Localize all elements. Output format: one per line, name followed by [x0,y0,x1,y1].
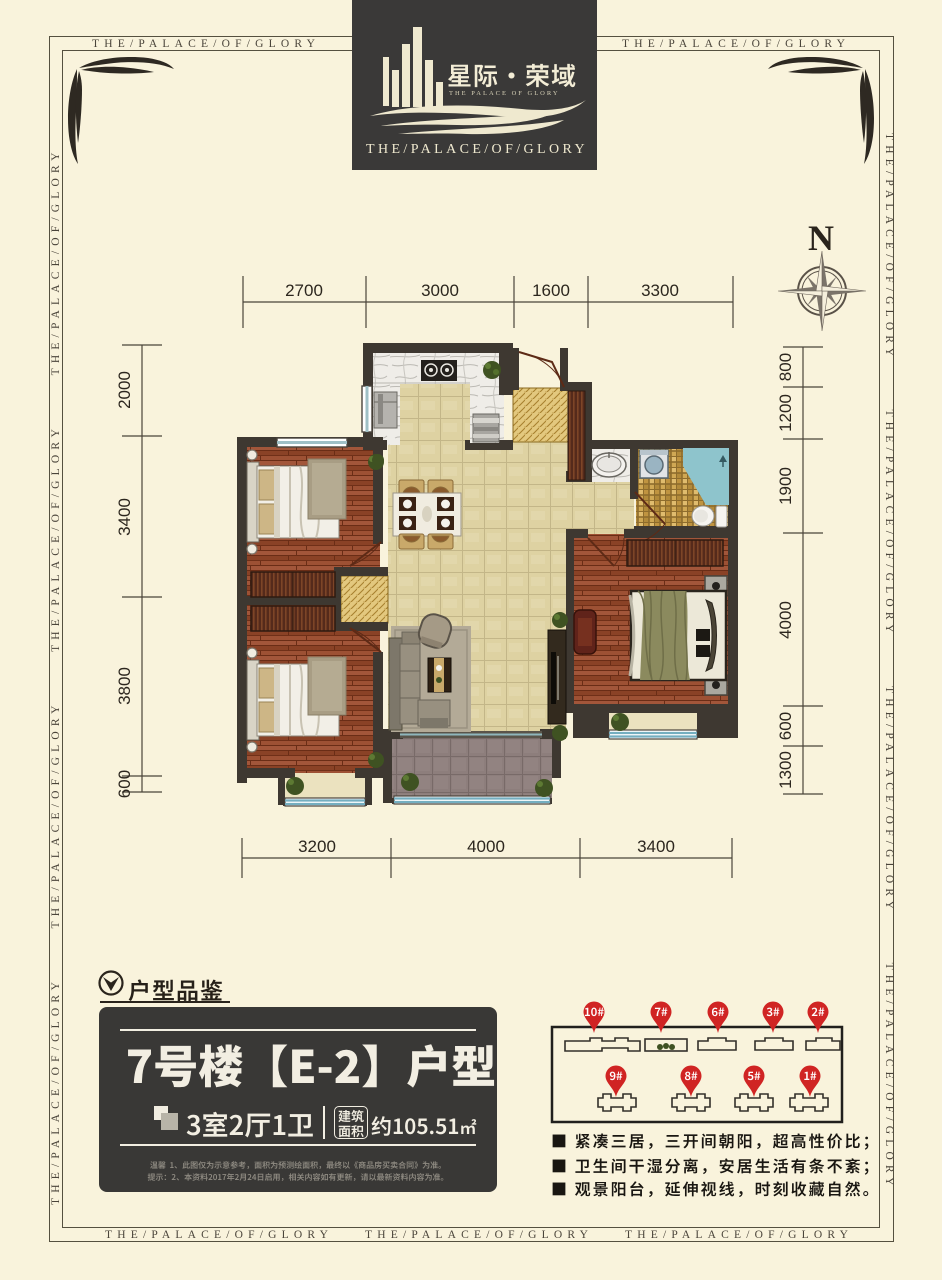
svg-text:7#: 7# [654,1004,668,1020]
svg-text:9#: 9# [609,1068,623,1084]
svg-text:1#: 1# [803,1068,817,1084]
svg-text:2#: 2# [811,1004,825,1020]
svg-text:6#: 6# [711,1004,725,1020]
svg-text:3#: 3# [766,1004,780,1020]
svg-text:5#: 5# [747,1068,761,1084]
svg-text:8#: 8# [684,1068,698,1084]
svg-text:10#: 10# [584,1004,604,1020]
